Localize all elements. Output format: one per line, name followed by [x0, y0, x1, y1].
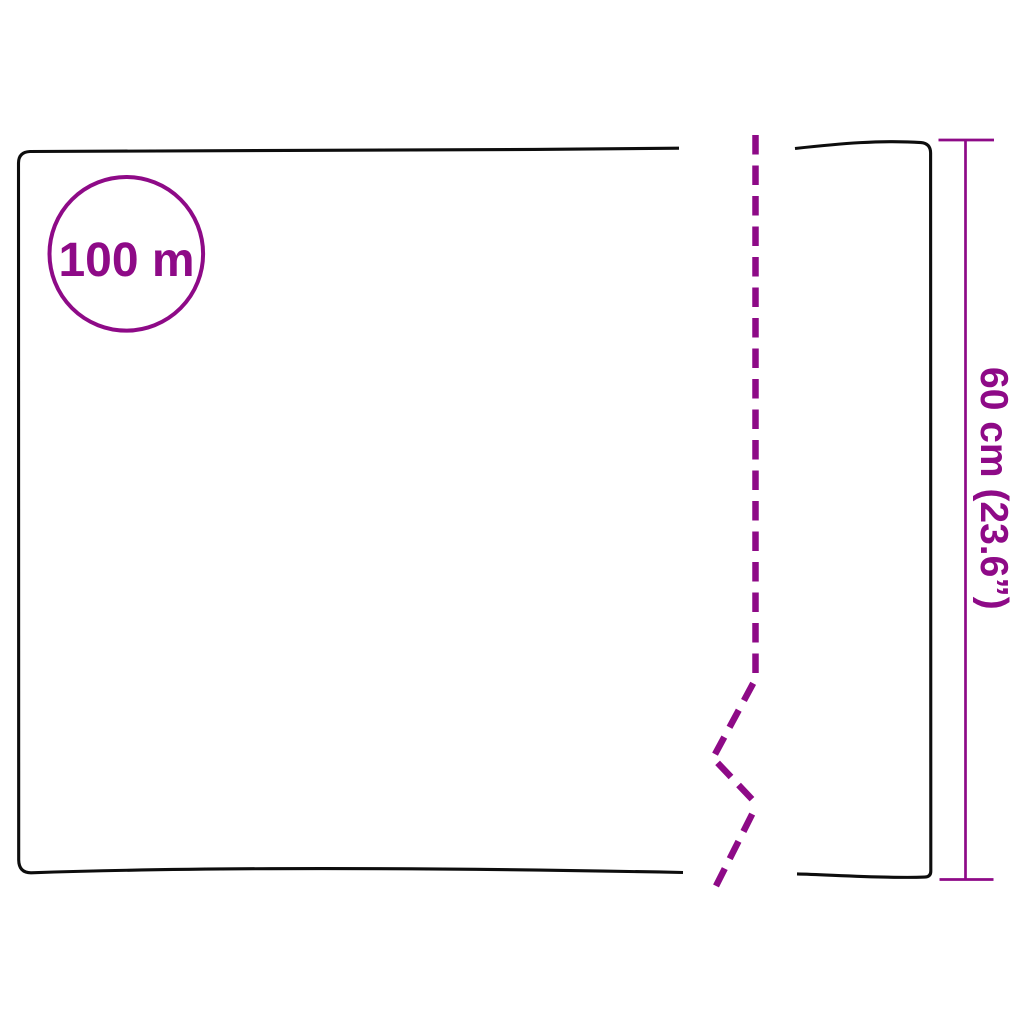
svg-text:100 m: 100 m	[58, 234, 194, 287]
svg-text:60 cm (23.6”): 60 cm (23.6”)	[972, 367, 1015, 610]
